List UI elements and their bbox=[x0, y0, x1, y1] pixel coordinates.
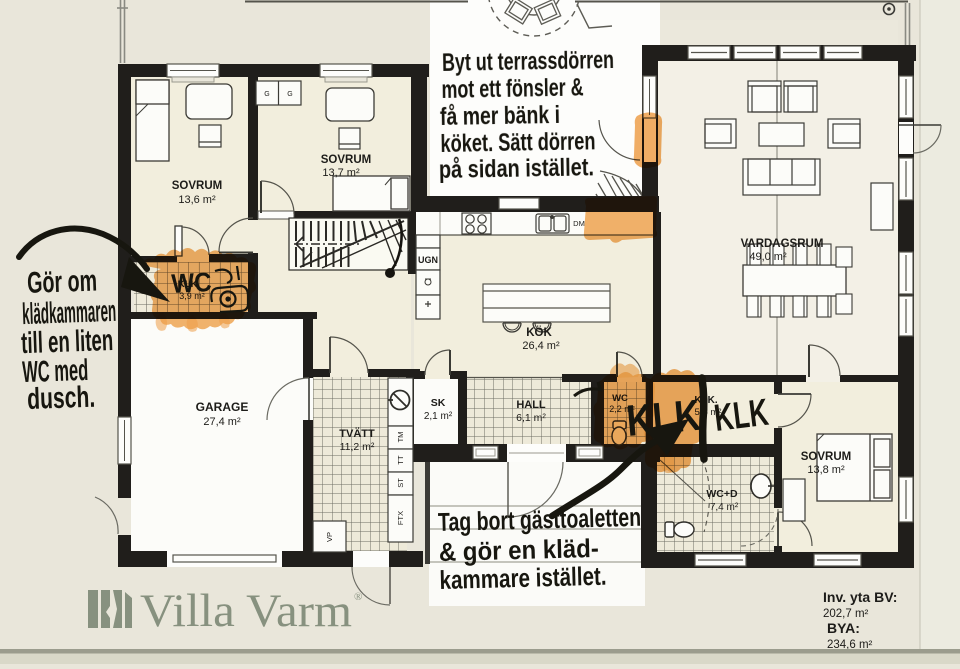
svg-text:på sidan istället.: på sidan istället. bbox=[439, 153, 594, 184]
svg-text:BYA:: BYA: bbox=[827, 620, 860, 636]
svg-text:mot ett fönsler &: mot ett fönsler & bbox=[441, 74, 583, 104]
svg-text:kammare istället.: kammare istället. bbox=[439, 561, 607, 595]
svg-text:13,6 m²: 13,6 m² bbox=[178, 194, 216, 206]
svg-text:Gör om: Gör om bbox=[27, 264, 98, 299]
svg-text:dusch.: dusch. bbox=[27, 381, 96, 416]
svg-text:VP: VP bbox=[325, 532, 334, 542]
svg-text:SOVRUM: SOVRUM bbox=[321, 154, 371, 166]
svg-text:KLK: KLK bbox=[712, 392, 771, 440]
svg-text:Villa Varm: Villa Varm bbox=[140, 585, 352, 637]
svg-text:13,8 m²: 13,8 m² bbox=[807, 464, 845, 476]
svg-text:G: G bbox=[287, 91, 292, 98]
svg-text:TVÄTT: TVÄTT bbox=[339, 427, 375, 440]
svg-text:G: G bbox=[264, 91, 269, 98]
svg-text:49,0 m²: 49,0 m² bbox=[749, 251, 787, 263]
svg-text:GARAGE: GARAGE bbox=[196, 400, 249, 414]
svg-text:WC: WC bbox=[171, 267, 213, 299]
svg-text:TM: TM bbox=[396, 432, 405, 443]
svg-text:Inv. yta BV:: Inv. yta BV: bbox=[823, 589, 897, 605]
svg-text:27,4 m²: 27,4 m² bbox=[203, 416, 241, 428]
svg-text:202,7 m²: 202,7 m² bbox=[823, 608, 869, 620]
svg-text:KÖK: KÖK bbox=[526, 326, 552, 339]
svg-text:2,1 m²: 2,1 m² bbox=[424, 411, 453, 422]
svg-text:FTX: FTX bbox=[396, 511, 405, 525]
svg-text:11,2 m²: 11,2 m² bbox=[340, 441, 375, 453]
svg-text:TT: TT bbox=[396, 455, 405, 465]
svg-text:WC+D: WC+D bbox=[706, 488, 738, 500]
svg-text:6,1 m²: 6,1 m² bbox=[516, 412, 546, 424]
svg-text:SOVRUM: SOVRUM bbox=[172, 180, 222, 192]
svg-text:Byt ut terrassdörren: Byt ut terrassdörren bbox=[442, 46, 614, 77]
svg-text:7,4 m²: 7,4 m² bbox=[710, 502, 739, 513]
svg-text:13,7 m²: 13,7 m² bbox=[322, 167, 360, 179]
svg-text:VARDAGSRUM: VARDAGSRUM bbox=[741, 238, 824, 250]
svg-text:Tag bort gästtoaletten: Tag bort gästtoaletten bbox=[438, 502, 642, 537]
svg-text:26,4 m²: 26,4 m² bbox=[522, 340, 560, 352]
svg-text:ST: ST bbox=[396, 478, 405, 488]
svg-text:SK: SK bbox=[431, 397, 446, 409]
svg-text:UGN: UGN bbox=[418, 255, 438, 265]
svg-text:SOVRUM: SOVRUM bbox=[801, 451, 851, 463]
svg-text:DM: DM bbox=[573, 219, 585, 228]
svg-text:få mer bänk i: få mer bänk i bbox=[440, 101, 560, 131]
svg-text:®: ® bbox=[354, 591, 362, 603]
svg-text:HALL: HALL bbox=[516, 399, 546, 411]
